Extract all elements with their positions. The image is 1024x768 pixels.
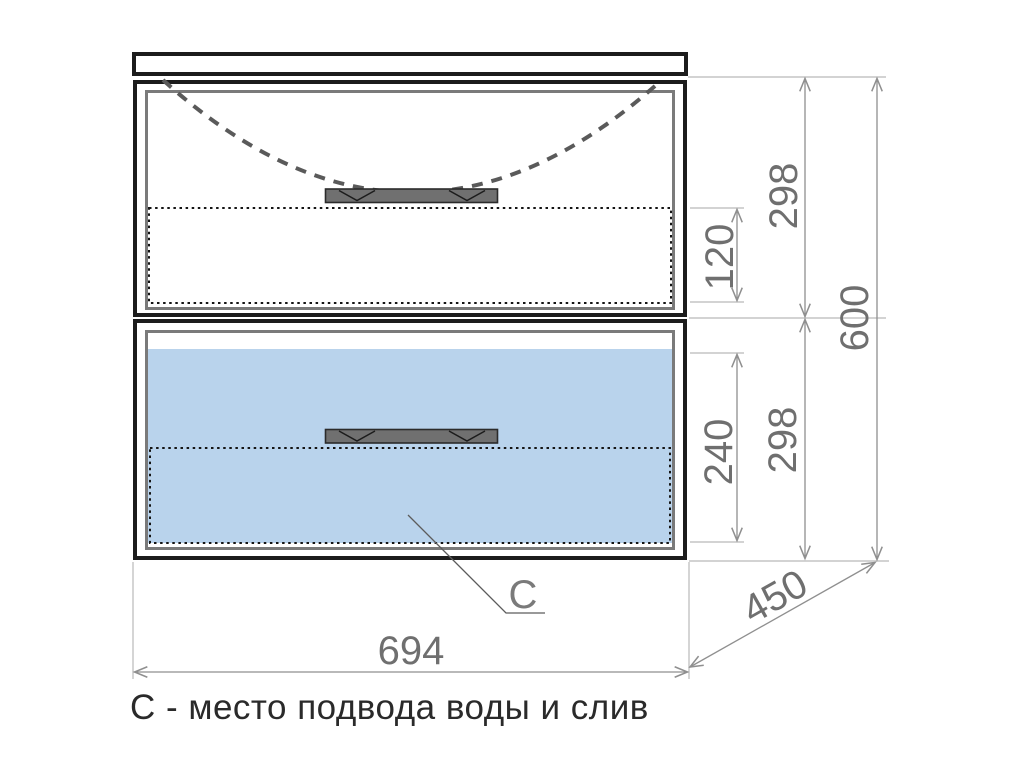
dimension-top-drawer-298: 298 — [762, 79, 806, 317]
caption: С - место подвода воды и слив — [130, 688, 649, 727]
top-drawer-handle — [326, 189, 498, 203]
dim-label-694: 694 — [378, 629, 445, 673]
leader-label-c: C — [509, 573, 538, 617]
vanity-technical-drawing: 120 298 240 298 600 694 450 — [0, 0, 1024, 768]
bottom-drawer-handle — [326, 430, 498, 444]
countertop — [134, 54, 686, 74]
dim-label-240: 240 — [697, 419, 741, 486]
dimension-depth-450: 450 — [690, 561, 875, 667]
top-drawer — [135, 80, 685, 315]
dimension-top-inner-120: 120 — [698, 210, 742, 301]
dim-label-298-top: 298 — [762, 163, 806, 230]
drawing-page: 120 298 240 298 600 694 450 — [0, 0, 1024, 768]
dimension-width-694: 694 — [135, 629, 688, 673]
bottom-drawer — [135, 321, 685, 558]
dimension-bottom-drawer-298: 298 — [761, 320, 805, 559]
dimension-bottom-inner-240: 240 — [697, 355, 741, 541]
dim-label-120: 120 — [698, 224, 742, 291]
bottom-drawer-highlight — [148, 349, 672, 543]
dim-label-450: 450 — [735, 561, 815, 632]
dim-label-600: 600 — [833, 285, 877, 352]
cabinet — [134, 54, 686, 558]
dimension-total-height-600: 600 — [833, 79, 877, 560]
dim-label-298-bottom: 298 — [761, 407, 805, 474]
